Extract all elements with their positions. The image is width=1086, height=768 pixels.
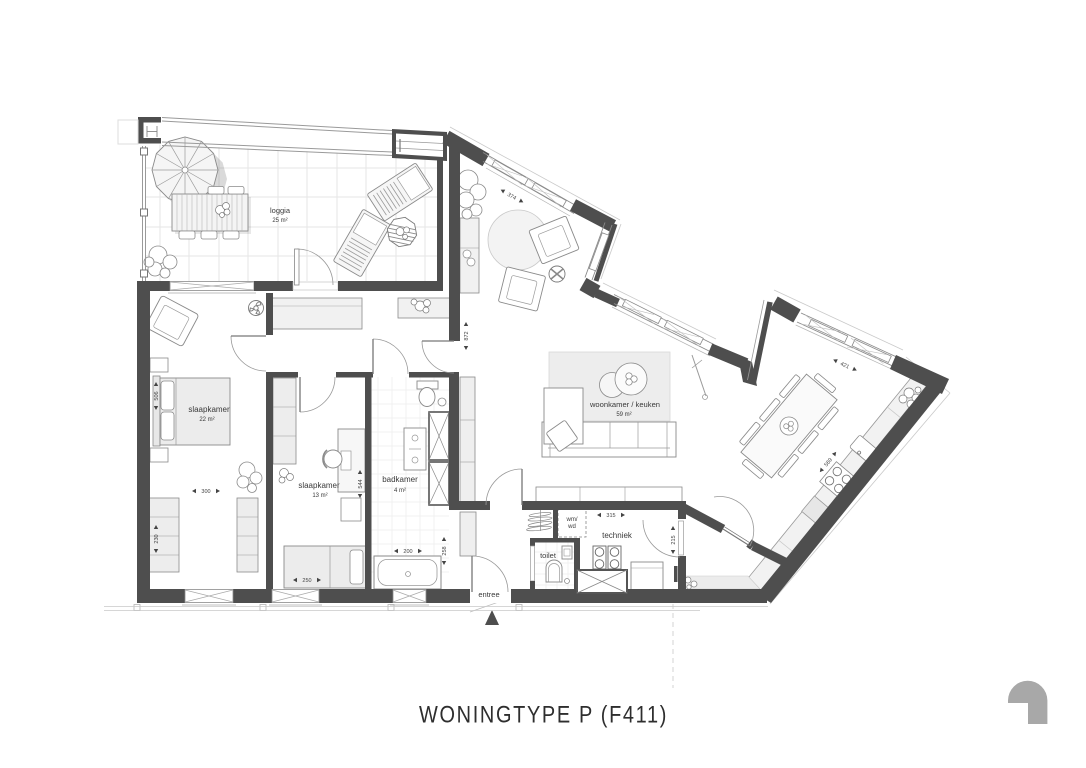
- svg-text:woonkamer / keuken: woonkamer / keuken: [589, 400, 660, 409]
- svg-text:300: 300: [201, 489, 210, 495]
- svg-text:250: 250: [302, 578, 311, 584]
- svg-text:slaapkamer: slaapkamer: [298, 481, 340, 490]
- svg-text:slaapkamer: slaapkamer: [188, 405, 230, 414]
- svg-text:230: 230: [154, 534, 160, 543]
- svg-text:59 m²: 59 m²: [616, 412, 631, 418]
- svg-text:toilet: toilet: [540, 551, 557, 560]
- svg-text:22 m²: 22 m²: [199, 417, 214, 423]
- svg-text:13 m²: 13 m²: [312, 493, 327, 499]
- svg-text:315: 315: [606, 513, 615, 519]
- svg-text:entree: entree: [478, 590, 499, 599]
- svg-text:wd: wd: [567, 524, 576, 530]
- svg-text:506: 506: [154, 391, 160, 400]
- svg-text:wm/: wm/: [566, 517, 578, 523]
- svg-text:872: 872: [464, 331, 470, 340]
- svg-text:200: 200: [403, 549, 412, 555]
- svg-text:374: 374: [506, 192, 517, 202]
- svg-text:4 m²: 4 m²: [394, 488, 406, 494]
- svg-text:215: 215: [671, 535, 677, 544]
- svg-text:25 m²: 25 m²: [272, 218, 287, 224]
- svg-text:techniek: techniek: [602, 531, 633, 540]
- svg-text:421: 421: [839, 361, 850, 370]
- svg-text:WONINGTYPE P (F411): WONINGTYPE P (F411): [419, 702, 668, 729]
- svg-text:badkamer: badkamer: [382, 475, 418, 484]
- svg-text:258: 258: [442, 546, 448, 555]
- svg-text:544: 544: [358, 479, 364, 488]
- svg-text:loggia: loggia: [270, 206, 291, 215]
